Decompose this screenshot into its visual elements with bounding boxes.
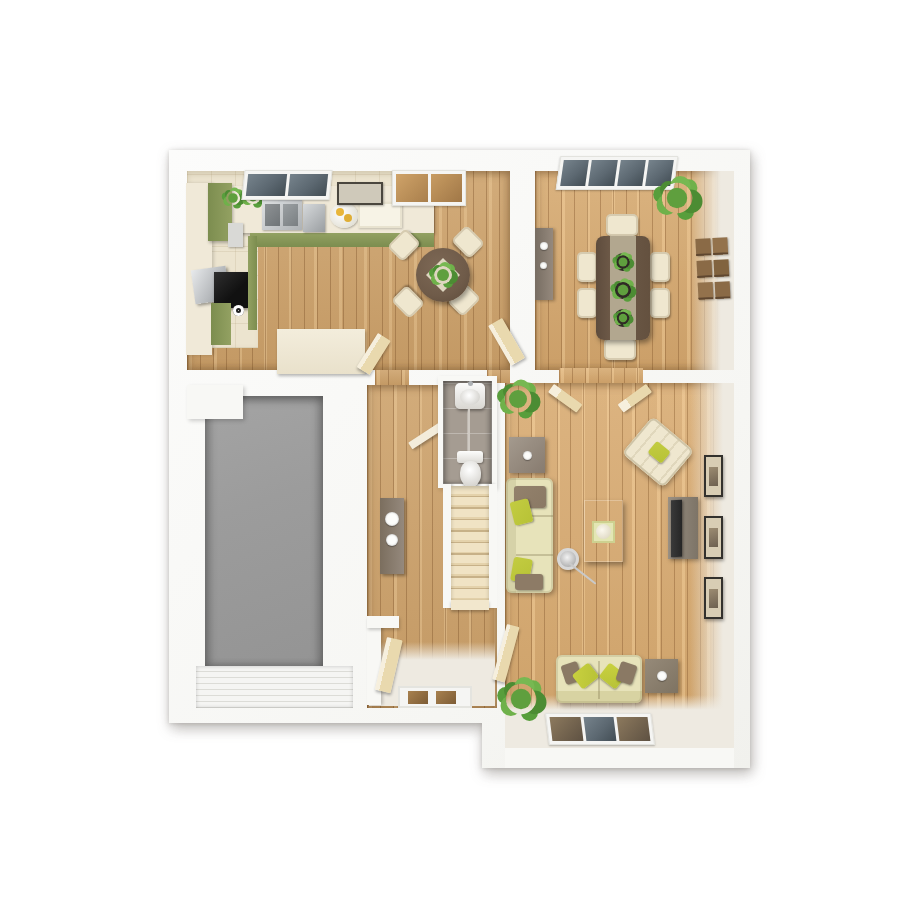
floor-plan-canvas	[0, 0, 917, 917]
grey-table-candle	[523, 451, 532, 460]
living-window-pane-1	[550, 717, 584, 741]
sink-bowl-right	[283, 204, 298, 226]
table-planter-plant-3	[619, 314, 627, 322]
dining-window-pane-3	[617, 160, 646, 186]
armchair-pillow-green	[647, 441, 670, 464]
two-seat-sofa	[556, 655, 642, 703]
side-table-candle	[657, 671, 667, 681]
dining-window-pane-4	[645, 160, 674, 186]
dining-chair-bottom	[604, 338, 636, 360]
stairs-treads	[451, 486, 489, 600]
dining-wall-art-grid	[695, 237, 732, 303]
sideboard-item-1	[540, 242, 548, 250]
wall-frame-2	[704, 516, 723, 559]
wood-side-table	[645, 659, 678, 693]
building-outline	[169, 150, 750, 768]
kitchen-wall-art	[337, 182, 383, 205]
wc-pipe	[468, 409, 470, 453]
art-tile	[698, 282, 714, 300]
living-light-strip-right	[690, 383, 734, 748]
wall-frame-3	[704, 577, 723, 619]
table-planter-plant-2	[618, 285, 629, 296]
tray-bowl	[596, 524, 611, 539]
sink-steel	[262, 200, 302, 230]
breakfast-round-table	[416, 248, 470, 302]
sink-bowl-left	[265, 204, 280, 226]
pot-white-2	[233, 305, 244, 316]
tv-screen	[671, 500, 682, 558]
microwave	[228, 223, 243, 247]
coffee-table	[584, 500, 623, 562]
table-centre-plant	[437, 269, 449, 281]
wall-frame-1	[704, 455, 723, 497]
front-door-glass-1	[408, 691, 428, 704]
basin-bowl	[460, 389, 480, 405]
kitchen-window-pane-2	[287, 174, 328, 196]
building-shadow-wrap	[169, 150, 750, 768]
living-window	[545, 713, 655, 745]
wc-basin	[455, 383, 485, 409]
dining-corner-plant	[667, 188, 687, 208]
dining-chair-top	[606, 214, 638, 236]
steel-appliance	[303, 204, 325, 232]
art-tile	[696, 260, 712, 278]
kitchen-green-facing-band	[248, 236, 257, 330]
living-plant-top-left	[509, 390, 527, 408]
garage-corner-pillar	[187, 385, 243, 419]
console-bowl-2	[386, 534, 398, 546]
dining-chair-right-2	[650, 288, 670, 318]
french-door-pane-1	[396, 174, 428, 202]
art-tile	[713, 259, 729, 277]
hall-cupboard-side	[367, 620, 381, 705]
dining-sideboard	[535, 228, 553, 300]
dining-window-pane-1	[560, 160, 589, 186]
juice-glass-1	[336, 208, 344, 216]
dining-chair-left-1	[577, 252, 597, 282]
dining-window	[556, 156, 679, 190]
grey-side-table	[509, 437, 545, 473]
dining-chair-right-1	[650, 252, 670, 282]
art-tile	[715, 281, 731, 299]
sofa-cushion-line-2	[516, 554, 553, 556]
table-planter-plant-1	[619, 258, 628, 267]
living-bottom-wall	[505, 748, 734, 768]
drinks-tray	[330, 203, 358, 228]
console-bowl-1	[385, 512, 399, 526]
hall-cupboard-top	[367, 616, 399, 628]
stairs-bottom-step	[451, 600, 489, 610]
stairs-wall-right	[489, 484, 497, 608]
french-door-pane-2	[431, 174, 463, 202]
stairs-wall-left	[443, 484, 451, 608]
peninsula-unit	[277, 329, 365, 374]
juice-glass-2	[344, 214, 352, 222]
opening-dining-living	[559, 368, 643, 383]
sofa2-cushion-line	[598, 661, 600, 699]
garage-door	[196, 666, 353, 708]
hall-console-table	[380, 498, 404, 574]
living-plant-bottom-left	[511, 689, 531, 709]
kitchen-window	[241, 170, 332, 200]
art-tile	[695, 238, 711, 256]
toilet-bowl	[460, 461, 481, 487]
coffee-table-tray	[592, 521, 615, 543]
front-door-glass-2	[436, 691, 456, 704]
basin-tap	[468, 381, 473, 386]
living-window-pane-3	[617, 717, 651, 741]
garage-floor	[205, 396, 323, 666]
kitchen-window-pane-1	[246, 174, 287, 196]
dining-chair-left-2	[577, 288, 597, 318]
dining-table	[596, 236, 650, 340]
three-seat-sofa	[506, 478, 553, 593]
dining-window-pane-2	[588, 160, 617, 186]
breakfast-french-door	[392, 170, 466, 206]
opening-kitchen-hall	[375, 370, 409, 385]
counter-plant-1	[228, 193, 238, 203]
sofa-throw-brown-2	[515, 574, 543, 590]
living-window-pane-2	[583, 717, 617, 741]
kitchen-base-green-lower	[211, 303, 231, 345]
sideboard-item-2	[540, 262, 547, 269]
front-door	[398, 686, 472, 708]
art-tile	[712, 237, 728, 255]
